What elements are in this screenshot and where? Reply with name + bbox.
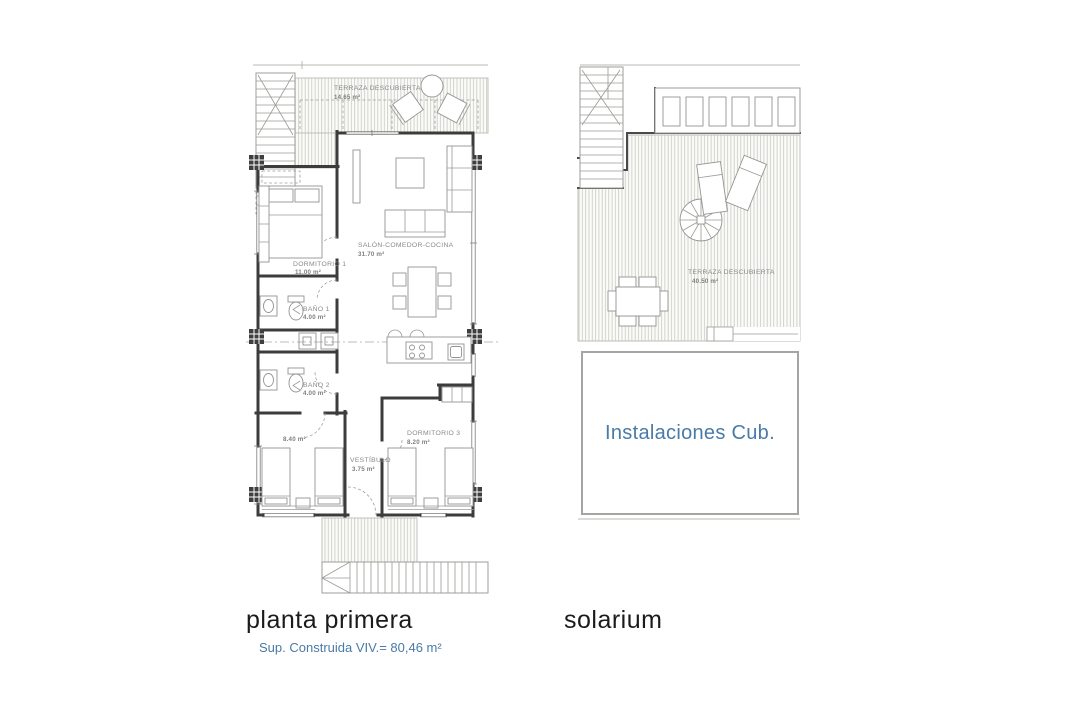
dining-table <box>393 267 451 317</box>
coffee-table <box>396 158 424 188</box>
terrace-table <box>421 75 443 97</box>
instalaciones-label: Instalaciones Cub. <box>582 352 798 514</box>
staircase-bottom <box>322 562 488 593</box>
plan-title-solarium: solarium <box>564 606 662 635</box>
double-bed <box>266 186 322 258</box>
room-area-salon: 31.70 m² <box>358 251 384 258</box>
room-label-salon: SALÓN-COMEDOR-COCINA <box>358 240 454 249</box>
plan-planta-primera: TERRAZA DESCUBIERTA 14.65 m² SALÓN-COMED… <box>246 61 500 593</box>
kitchen-counter <box>387 330 471 363</box>
utility-units <box>299 333 338 349</box>
plan-title-planta-primera: planta primera <box>246 606 413 635</box>
sofa-vertical <box>447 146 472 212</box>
entry-porch <box>322 518 417 562</box>
plan-subtitle-built-area: Sup. Construida VIV.= 80,46 m² <box>259 640 442 655</box>
panel-row <box>655 88 800 133</box>
room-area-bano1: 4.00 m² <box>303 314 326 321</box>
room-area-dormitorio3: 8.20 m² <box>407 439 430 446</box>
deck-step <box>707 327 800 341</box>
floor-plan-sheet: TERRAZA DESCUBIERTA 14.65 m² SALÓN-COMED… <box>0 0 1080 720</box>
room-label-terraza-solarium: TERRAZA DESCUBIERTA <box>688 269 775 276</box>
room-label-bano1: BAÑO 1 <box>303 304 330 313</box>
room-area-vestibulo: 3.75 m² <box>352 466 375 473</box>
room-area-dormitorio1: 11.00 m² <box>295 269 321 276</box>
room-label-bano2: BAÑO 2 <box>303 380 330 389</box>
room-area-terraza-solarium: 40.50 m² <box>692 278 718 285</box>
room-area-dormitorio2: 8.40 m² <box>283 436 306 443</box>
room-label-terraza: TERRAZA DESCUBIERTA <box>334 85 421 92</box>
floor-plan-drawing: TERRAZA DESCUBIERTA 14.65 m² SALÓN-COMED… <box>0 0 1080 720</box>
bathroom1-fixtures <box>260 296 304 320</box>
wardrobe <box>442 387 472 402</box>
room-area-bano2: 4.00 m² <box>303 390 326 397</box>
room-label-dormitorio1: DORMITORIO 1 <box>293 261 346 268</box>
sofa-horizontal <box>385 210 445 237</box>
staircase-solarium <box>580 67 623 188</box>
room-area-terraza: 14.65 m² <box>334 94 360 101</box>
tv-cabinet <box>353 150 360 203</box>
room-label-vestibulo: VESTÍBULO <box>350 455 391 464</box>
room-label-dormitorio3: DORMITORIO 3 <box>407 430 460 437</box>
